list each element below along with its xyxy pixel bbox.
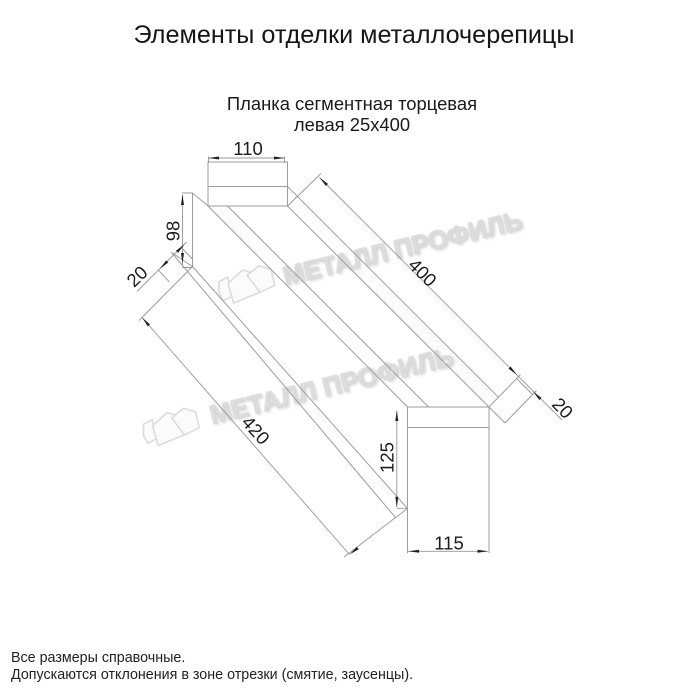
svg-text:20: 20 — [548, 393, 577, 422]
svg-text:115: 115 — [434, 533, 464, 554]
svg-text:420: 420 — [238, 412, 274, 449]
svg-text:98: 98 — [163, 221, 184, 242]
svg-text:400: 400 — [404, 254, 441, 291]
svg-text:110: 110 — [233, 138, 263, 159]
svg-text:125: 125 — [377, 442, 398, 473]
svg-text:20: 20 — [122, 262, 151, 291]
